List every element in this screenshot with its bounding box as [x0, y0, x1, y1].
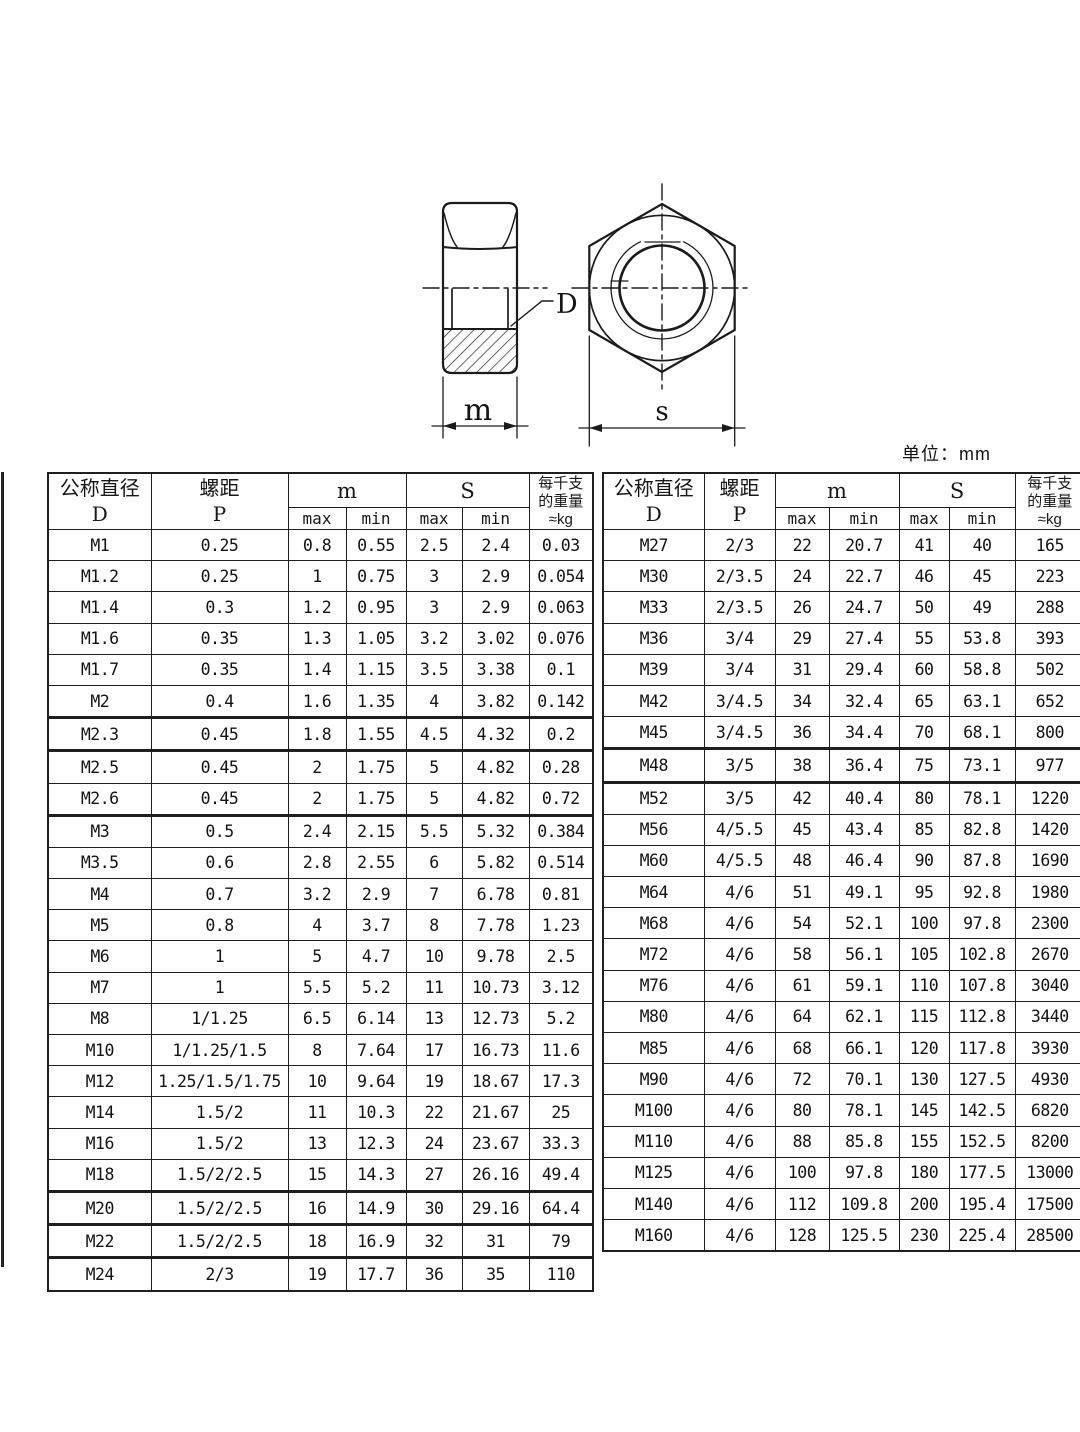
table-row: M121.25/1.5/1.75109.641918.6717.3 [48, 1066, 593, 1097]
cell: 56.1 [829, 939, 899, 970]
cell: 66.1 [829, 1033, 899, 1064]
cell: 223 [1015, 561, 1080, 592]
cell: M56 [603, 814, 704, 845]
cell: M60 [603, 845, 704, 876]
cell: 3/4.5 [704, 717, 775, 749]
table-row: M81/1.256.56.141312.735.2 [48, 1003, 593, 1034]
table-row: M604/5.54846.49087.81690 [603, 845, 1080, 876]
table-row: M483/53836.47573.1977 [603, 749, 1080, 782]
cell: 288 [1015, 592, 1080, 623]
cell: 70 [899, 717, 949, 749]
cell: 3.2 [288, 879, 346, 910]
nut-dimensions-table-left: 公称直径 D 螺距 P m S 每千支 的重量 ≈kg max min max … [47, 472, 594, 1292]
cell: 75 [899, 749, 949, 782]
cell: M1.6 [48, 623, 151, 654]
cell: M160 [603, 1220, 704, 1252]
table-row: M644/65149.19592.81980 [603, 877, 1080, 908]
cell: 64 [775, 1001, 829, 1032]
cell: 5 [406, 783, 462, 815]
cell: 3930 [1015, 1033, 1080, 1064]
cell: 1.5/2 [151, 1128, 288, 1159]
cell: 1980 [1015, 877, 1080, 908]
table-row: M854/66866.1120117.83930 [603, 1033, 1080, 1064]
cell: 1.5/2/2.5 [151, 1191, 288, 1224]
cell: 16.9 [346, 1225, 406, 1258]
cell: 393 [1015, 623, 1080, 654]
cell: 80 [775, 1095, 829, 1126]
cell: 1/1.25 [151, 1003, 288, 1034]
cell: M1.4 [48, 592, 151, 623]
cell: 3.38 [462, 654, 529, 685]
cell: 80 [899, 782, 949, 814]
cell: 3440 [1015, 1001, 1080, 1032]
cell: 2/3 [151, 1258, 288, 1291]
cell: 41 [899, 530, 949, 561]
header-s-max: max [406, 508, 462, 530]
cell: 5 [406, 751, 462, 783]
cell: 2 [288, 783, 346, 815]
cell: 24 [406, 1128, 462, 1159]
cell: 4/6 [704, 1126, 775, 1157]
cell: 33.3 [529, 1128, 593, 1159]
cell: 14.9 [346, 1191, 406, 1224]
cell: 3/4.5 [704, 685, 775, 716]
cell: 180 [899, 1157, 949, 1188]
cell: 18 [288, 1225, 346, 1258]
cell: 85.8 [829, 1126, 899, 1157]
cell: 60 [899, 654, 949, 685]
cell: 16 [288, 1191, 346, 1224]
cell: 7 [406, 879, 462, 910]
cell: 1.75 [346, 751, 406, 783]
cell: 2/3 [704, 530, 775, 561]
cell: 0.72 [529, 783, 593, 815]
cell: M2.3 [48, 718, 151, 751]
cell: 502 [1015, 654, 1080, 685]
cell: 0.5 [151, 815, 288, 847]
label-width-across-flats: s [655, 397, 668, 427]
cell: 110 [899, 970, 949, 1001]
cell: 24.7 [829, 592, 899, 623]
cell: 46 [899, 561, 949, 592]
cell: 4.82 [462, 751, 529, 783]
cell: 0.514 [529, 847, 593, 878]
cell: 32.4 [829, 685, 899, 716]
cell: 15 [288, 1159, 346, 1191]
cell: 4/6 [704, 970, 775, 1001]
cell: 20.7 [829, 530, 899, 561]
cell: 4/6 [704, 1001, 775, 1032]
header-weight: 每千支 的重量 ≈kg [1015, 473, 1080, 530]
cell: 72 [775, 1064, 829, 1095]
table-row: M242/31917.73635110 [48, 1258, 593, 1291]
cell: 51 [775, 877, 829, 908]
cell: 3/5 [704, 782, 775, 814]
cell: 120 [899, 1033, 949, 1064]
table-row: M1.40.31.20.9532.90.063 [48, 592, 593, 623]
cell: M3.5 [48, 847, 151, 878]
cell: 34 [775, 685, 829, 716]
table-row: M684/65452.110097.82300 [603, 908, 1080, 939]
cell: M14 [48, 1097, 151, 1128]
cell: 70.1 [829, 1064, 899, 1095]
cell: 24 [775, 561, 829, 592]
header-m: m [288, 473, 406, 508]
table-row: M20.41.61.3543.820.142 [48, 685, 593, 717]
table-row: M181.5/2/2.51514.32726.1649.4 [48, 1159, 593, 1191]
table-row: M201.5/2/2.51614.93029.1664.4 [48, 1191, 593, 1224]
cell: 17500 [1015, 1188, 1080, 1219]
cell: 55 [899, 623, 949, 654]
cell: M90 [603, 1064, 704, 1095]
cell: 78.1 [829, 1095, 899, 1126]
cell: 78.1 [949, 782, 1015, 814]
cell: 1.3 [288, 623, 346, 654]
table-row: M423/4.53432.46563.1652 [603, 685, 1080, 716]
cell: M2.5 [48, 751, 151, 783]
cell: 11 [406, 972, 462, 1003]
cell: 4.7 [346, 941, 406, 972]
cell: 23.67 [462, 1128, 529, 1159]
table-row: M50.843.787.781.23 [48, 910, 593, 941]
cell: 2/3.5 [704, 561, 775, 592]
cell: 58.8 [949, 654, 1015, 685]
cell: 27.4 [829, 623, 899, 654]
cell: 0.45 [151, 751, 288, 783]
table-row: M523/54240.48078.11220 [603, 782, 1080, 814]
cell: 49 [949, 592, 1015, 623]
cell: 50 [899, 592, 949, 623]
cell: 42 [775, 782, 829, 814]
cell: 4/5.5 [704, 814, 775, 845]
cell: 3.5 [406, 654, 462, 685]
cell: 54 [775, 908, 829, 939]
cell: 59.1 [829, 970, 899, 1001]
cell: 4/6 [704, 1064, 775, 1095]
cell: M24 [48, 1258, 151, 1291]
cell: M85 [603, 1033, 704, 1064]
header-weight-line3: ≈kg [1016, 511, 1080, 529]
cell: 10.73 [462, 972, 529, 1003]
header-pitch-symbol: P [152, 502, 288, 527]
cell: 4/6 [704, 877, 775, 908]
cell: 45 [949, 561, 1015, 592]
cell: 52.1 [829, 908, 899, 939]
cell: M16 [48, 1128, 151, 1159]
cell: 977 [1015, 749, 1080, 782]
cell: M39 [603, 654, 704, 685]
cell: 3040 [1015, 970, 1080, 1001]
table-row: M2.50.4521.7554.820.28 [48, 751, 593, 783]
cell: 0.28 [529, 751, 593, 783]
cell: 115 [899, 1001, 949, 1032]
cell: M27 [603, 530, 704, 561]
header-diameter-title: 公称直径 [604, 477, 704, 502]
cell: 0.81 [529, 879, 593, 910]
cell: M140 [603, 1188, 704, 1219]
cell: 177.5 [949, 1157, 1015, 1188]
header-s-max: max [899, 508, 949, 530]
cell: 10.3 [346, 1097, 406, 1128]
cell: 3.02 [462, 623, 529, 654]
cell: 17.3 [529, 1066, 593, 1097]
table-row: M10.250.80.552.52.40.03 [48, 530, 593, 561]
cell: 68 [775, 1033, 829, 1064]
cell: 68.1 [949, 717, 1015, 749]
cell: 5 [288, 941, 346, 972]
cell: 48 [775, 845, 829, 876]
cell: 0.35 [151, 623, 288, 654]
cell: M20 [48, 1191, 151, 1224]
header-m-max: max [288, 508, 346, 530]
table-row: M724/65856.1105102.82670 [603, 939, 1080, 970]
cell: 43.4 [829, 814, 899, 845]
cell: 38 [775, 749, 829, 782]
header-pitch: 螺距 P [151, 473, 288, 530]
cell: M52 [603, 782, 704, 814]
cell: 10 [288, 1066, 346, 1097]
header-s: S [406, 473, 529, 508]
cell: 14.3 [346, 1159, 406, 1191]
cell: 36.4 [829, 749, 899, 782]
cell: 7.78 [462, 910, 529, 941]
cell: 30 [406, 1191, 462, 1224]
cell: 22 [406, 1097, 462, 1128]
cell: 2.5 [529, 941, 593, 972]
cell: 3/4 [704, 623, 775, 654]
table-row: M1604/6128125.5230225.428500 [603, 1220, 1080, 1252]
table-row: M1.60.351.31.053.23.020.076 [48, 623, 593, 654]
cell: 5.32 [462, 815, 529, 847]
cell: M42 [603, 685, 704, 716]
cell: 0.03 [529, 530, 593, 561]
cell: 1.55 [346, 718, 406, 751]
cell: 0.75 [346, 561, 406, 592]
cell: 0.25 [151, 561, 288, 592]
cell: 8 [288, 1035, 346, 1066]
cell: 27 [406, 1159, 462, 1191]
cell: 10 [406, 941, 462, 972]
cell: 0.063 [529, 592, 593, 623]
cell: 87.8 [949, 845, 1015, 876]
cell: 142.5 [949, 1095, 1015, 1126]
table-row: M2.30.451.81.554.54.320.2 [48, 718, 593, 751]
cell: 4930 [1015, 1064, 1080, 1095]
cell: 130 [899, 1064, 949, 1095]
cell: 6.5 [288, 1003, 346, 1034]
cell: M5 [48, 910, 151, 941]
header-weight-line2: 的重量 [1016, 493, 1080, 511]
cell: 28500 [1015, 1220, 1080, 1252]
cell: 18.67 [462, 1066, 529, 1097]
cell: M1.7 [48, 654, 151, 685]
label-bore-diameter: D [556, 289, 578, 320]
cell: 4/5.5 [704, 845, 775, 876]
cell: 25 [529, 1097, 593, 1128]
header-diameter-symbol: D [604, 502, 704, 527]
cell: 5.2 [529, 1003, 593, 1034]
cell: 32 [406, 1225, 462, 1258]
header-m: m [775, 473, 899, 508]
cell: 62.1 [829, 1001, 899, 1032]
cell: 9.78 [462, 941, 529, 972]
cell: M1 [48, 530, 151, 561]
cell: 2/3.5 [704, 592, 775, 623]
cell: 112 [775, 1188, 829, 1219]
cell: 4 [406, 685, 462, 717]
cell: 2.9 [462, 592, 529, 623]
cell: 0.55 [346, 530, 406, 561]
cell: 31 [462, 1225, 529, 1258]
cell: 1420 [1015, 814, 1080, 845]
cell: 0.6 [151, 847, 288, 878]
cell: 0.45 [151, 718, 288, 751]
cell: 4/6 [704, 1157, 775, 1188]
cell: 105 [899, 939, 949, 970]
cell: M125 [603, 1157, 704, 1188]
cell: 73.1 [949, 749, 1015, 782]
arrowhead-icon [722, 424, 735, 432]
header-diameter: 公称直径 D [48, 473, 151, 530]
table-row: M30.52.42.155.55.320.384 [48, 815, 593, 847]
cell: M48 [603, 749, 704, 782]
cell: 13 [406, 1003, 462, 1034]
header-diameter: 公称直径 D [603, 473, 704, 530]
cell: 45 [775, 814, 829, 845]
cell: 1.23 [529, 910, 593, 941]
cell: 5.5 [406, 815, 462, 847]
cell: 36 [775, 717, 829, 749]
table-row: M764/66159.1110107.83040 [603, 970, 1080, 1001]
cell: 21.67 [462, 1097, 529, 1128]
cell: M80 [603, 1001, 704, 1032]
table-row: M6154.7109.782.5 [48, 941, 593, 972]
cell: 1.15 [346, 654, 406, 685]
table-row: M904/67270.1130127.54930 [603, 1064, 1080, 1095]
cell: 3/5 [704, 749, 775, 782]
cell: 1.8 [288, 718, 346, 751]
cell: 2.55 [346, 847, 406, 878]
cell: 4/6 [704, 1033, 775, 1064]
cell: 0.3 [151, 592, 288, 623]
header-weight-line2: 的重量 [530, 493, 593, 511]
cell: 26.16 [462, 1159, 529, 1191]
cell: M2.6 [48, 783, 151, 815]
cell: 6 [406, 847, 462, 878]
cell: M18 [48, 1159, 151, 1191]
cell: 0.076 [529, 623, 593, 654]
cell: 8 [406, 910, 462, 941]
cell: 36 [406, 1258, 462, 1291]
cell: 4/6 [704, 1220, 775, 1252]
cell: 31 [775, 654, 829, 685]
table-row: M453/4.53634.47068.1800 [603, 717, 1080, 749]
cell: 1 [151, 941, 288, 972]
cell: 82.8 [949, 814, 1015, 845]
table-row: M715.55.21110.733.12 [48, 972, 593, 1003]
cell: 1.4 [288, 654, 346, 685]
table-row: M804/66462.1115112.83440 [603, 1001, 1080, 1032]
cell: 1.35 [346, 685, 406, 717]
cell: 127.5 [949, 1064, 1015, 1095]
cell: M10 [48, 1035, 151, 1066]
arrowhead-icon [504, 422, 517, 430]
cell: 17.7 [346, 1258, 406, 1291]
cell: 652 [1015, 685, 1080, 716]
cell: 4.5 [406, 718, 462, 751]
header-pitch-symbol: P [705, 502, 775, 527]
label-nut-height: m [464, 393, 492, 428]
cell: 2.4 [288, 815, 346, 847]
cell: 22 [775, 530, 829, 561]
cell: 195.4 [949, 1188, 1015, 1219]
cell: 49.4 [529, 1159, 593, 1191]
cell: 2.9 [462, 561, 529, 592]
cell: 88 [775, 1126, 829, 1157]
cell: 3.2 [406, 623, 462, 654]
cell: 0.8 [151, 910, 288, 941]
header-pitch: 螺距 P [704, 473, 775, 530]
cell: 200 [899, 1188, 949, 1219]
table-row: M2.60.4521.7554.820.72 [48, 783, 593, 815]
table-row: M141.5/21110.32221.6725 [48, 1097, 593, 1128]
cell: 9.64 [346, 1066, 406, 1097]
cell: 100 [899, 908, 949, 939]
cell: M1.2 [48, 561, 151, 592]
cell: 65 [899, 685, 949, 716]
cell: 2.8 [288, 847, 346, 878]
header-weight-line1: 每千支 [530, 475, 593, 493]
table-row: M3.50.62.82.5565.820.514 [48, 847, 593, 878]
cell: 12.73 [462, 1003, 529, 1034]
cell: 112.8 [949, 1001, 1015, 1032]
cell: 7.64 [346, 1035, 406, 1066]
cell: 29.4 [829, 654, 899, 685]
header-diameter-title: 公称直径 [49, 477, 151, 502]
cell: 2.9 [346, 879, 406, 910]
cell: 49.1 [829, 877, 899, 908]
cell: 4.82 [462, 783, 529, 815]
table-row: M302/3.52422.74645223 [603, 561, 1080, 592]
table-row: M1.20.2510.7532.90.054 [48, 561, 593, 592]
cell: 6.78 [462, 879, 529, 910]
table-row: M1404/6112109.8200195.417500 [603, 1188, 1080, 1219]
cell: 64.4 [529, 1191, 593, 1224]
cell: 3.82 [462, 685, 529, 717]
cell: 0.4 [151, 685, 288, 717]
cell: 0.054 [529, 561, 593, 592]
scan-edge-artifact [1, 472, 4, 1267]
unit-note: 单位：mm [902, 440, 991, 466]
arrowhead-icon [443, 422, 456, 430]
cell: 58 [775, 939, 829, 970]
header-m-min: min [346, 508, 406, 530]
cell: 34.4 [829, 717, 899, 749]
cell: 1.5/2/2.5 [151, 1159, 288, 1191]
cell: 1.75 [346, 783, 406, 815]
cell: 4/6 [704, 908, 775, 939]
cell: 79 [529, 1225, 593, 1258]
cell: 3 [406, 592, 462, 623]
cell: 8200 [1015, 1126, 1080, 1157]
cell: M8 [48, 1003, 151, 1034]
cell: 155 [899, 1126, 949, 1157]
cell: 97.8 [949, 908, 1015, 939]
cell: 22.7 [829, 561, 899, 592]
cell: 63.1 [949, 685, 1015, 716]
cell: 1.6 [288, 685, 346, 717]
cell: 2.15 [346, 815, 406, 847]
